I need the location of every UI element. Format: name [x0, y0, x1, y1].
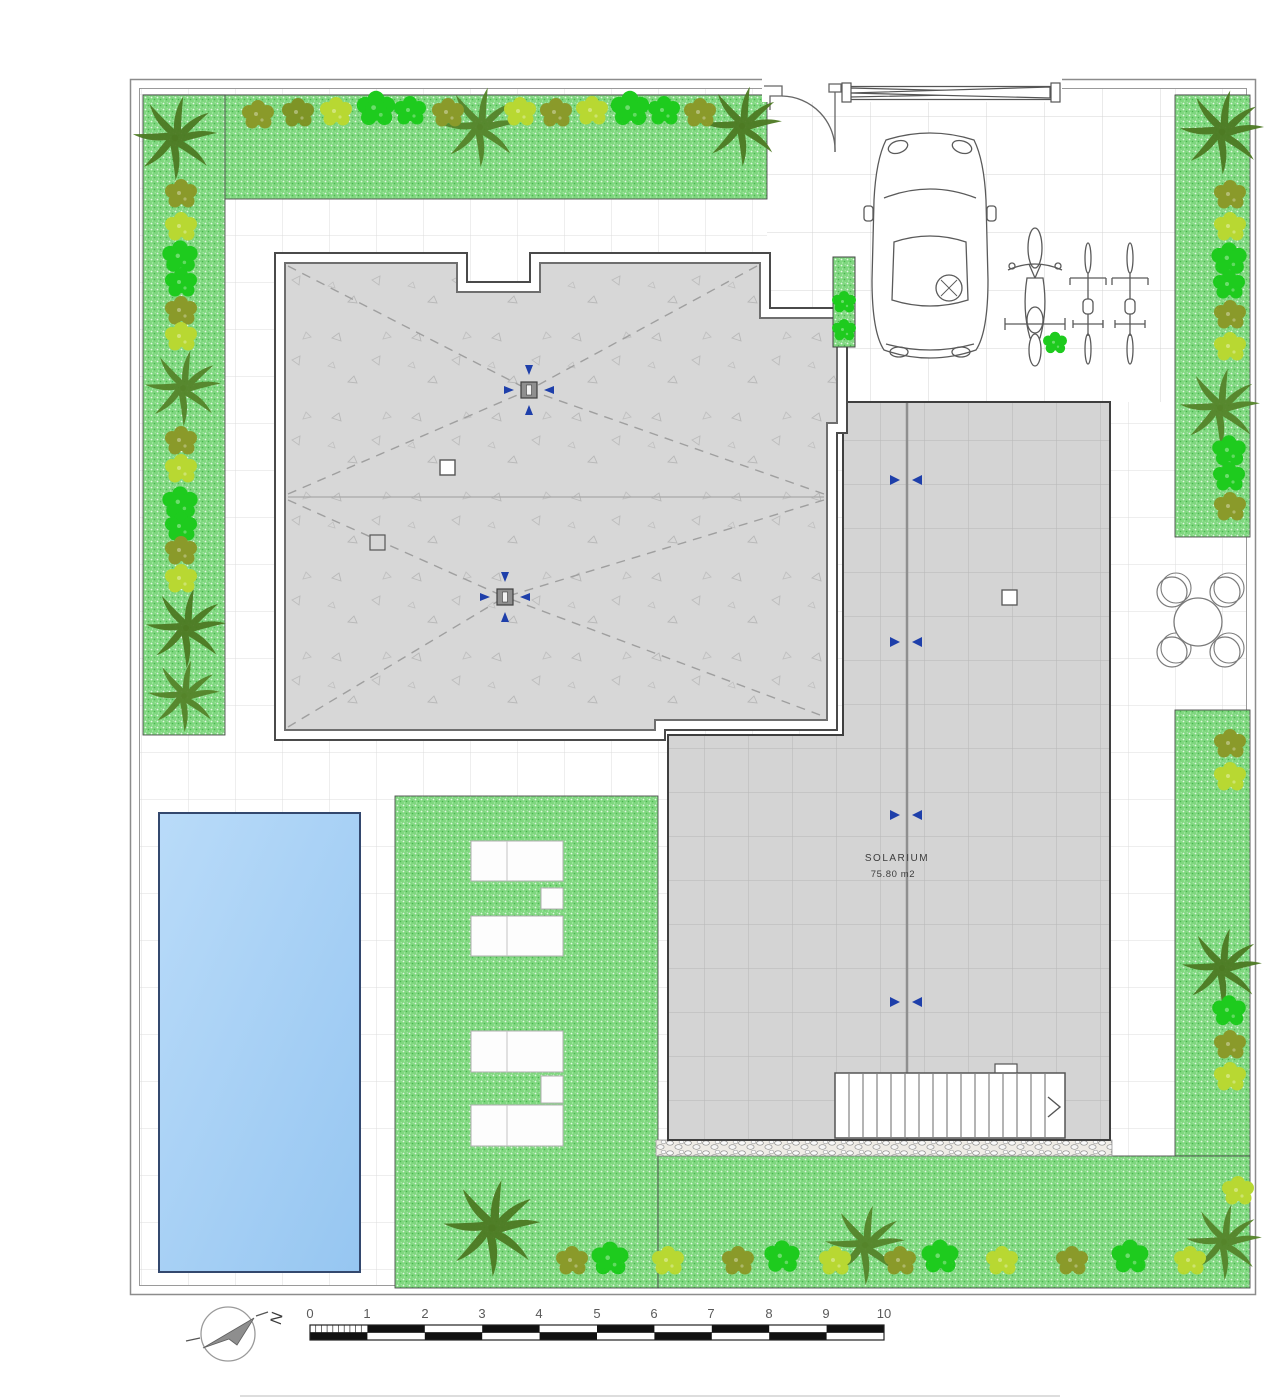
- scale-tick-label: 4: [535, 1306, 542, 1321]
- scale-tick-label: 0: [306, 1306, 313, 1321]
- scale-tick-label: 8: [765, 1306, 772, 1321]
- scale-tick-label: 10: [877, 1306, 891, 1321]
- scale-tick-label: 5: [593, 1306, 600, 1321]
- scale-tick-label: 7: [707, 1306, 714, 1321]
- scale-tick-label: 1: [363, 1306, 370, 1321]
- solarium-label: SOLARIUM: [865, 853, 929, 864]
- scale-tick-label: 3: [478, 1306, 485, 1321]
- scale-tick-label: 6: [650, 1306, 657, 1321]
- north-arrow: N: [186, 1307, 285, 1361]
- site-plan-sheet: SOLARIUM 75.80 m2: [0, 0, 1279, 1400]
- roof-vent: [370, 535, 385, 550]
- table-drawing: [1174, 598, 1222, 646]
- swimming-pool: [159, 813, 360, 1272]
- site-plan-drawing: SOLARIUM 75.80 m2: [0, 0, 1279, 1400]
- scale-tick-label: 9: [822, 1306, 829, 1321]
- car-drawing: [864, 133, 996, 358]
- roof-skylight: [440, 460, 455, 475]
- scale-bar: 0 1 2 3 4 5 6 7 8 9 10: [306, 1306, 891, 1340]
- house-roof: [285, 263, 837, 730]
- gravel-strip: [656, 1140, 1112, 1156]
- scale-tick-label: 2: [421, 1306, 428, 1321]
- solarium-area-label: 75.80 m2: [871, 869, 915, 880]
- north-label: N: [266, 1311, 285, 1326]
- stairs: [835, 1064, 1065, 1138]
- solarium-vent: [1002, 590, 1017, 605]
